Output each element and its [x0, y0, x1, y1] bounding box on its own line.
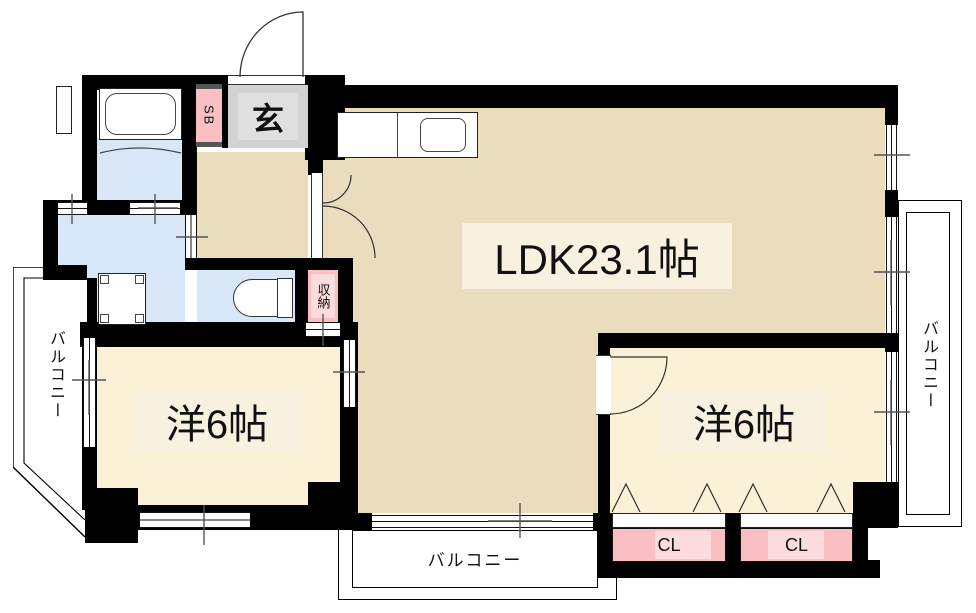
- window-tick: [72, 360, 106, 415]
- door-arc: [610, 357, 667, 414]
- fold-door-triangle: [739, 484, 767, 512]
- bathtub-edge: [100, 148, 181, 153]
- door-arc: [323, 206, 375, 258]
- window-tick: [874, 240, 910, 305]
- fold-door-triangle: [693, 484, 721, 512]
- plan-annotations-layer: [0, 0, 976, 613]
- floorplan-canvas: 玄 SB 収納 CL CL LDK23.1帖 洋6帖 洋6帖 バルコニー バルコ…: [0, 0, 976, 613]
- window-tick: [138, 194, 178, 224]
- door-arc: [240, 12, 303, 77]
- fold-door-triangle: [817, 484, 845, 512]
- window-tick: [488, 503, 552, 538]
- door-arc: [323, 175, 351, 203]
- fold-door-triangle: [612, 484, 640, 512]
- window-tick: [874, 380, 910, 445]
